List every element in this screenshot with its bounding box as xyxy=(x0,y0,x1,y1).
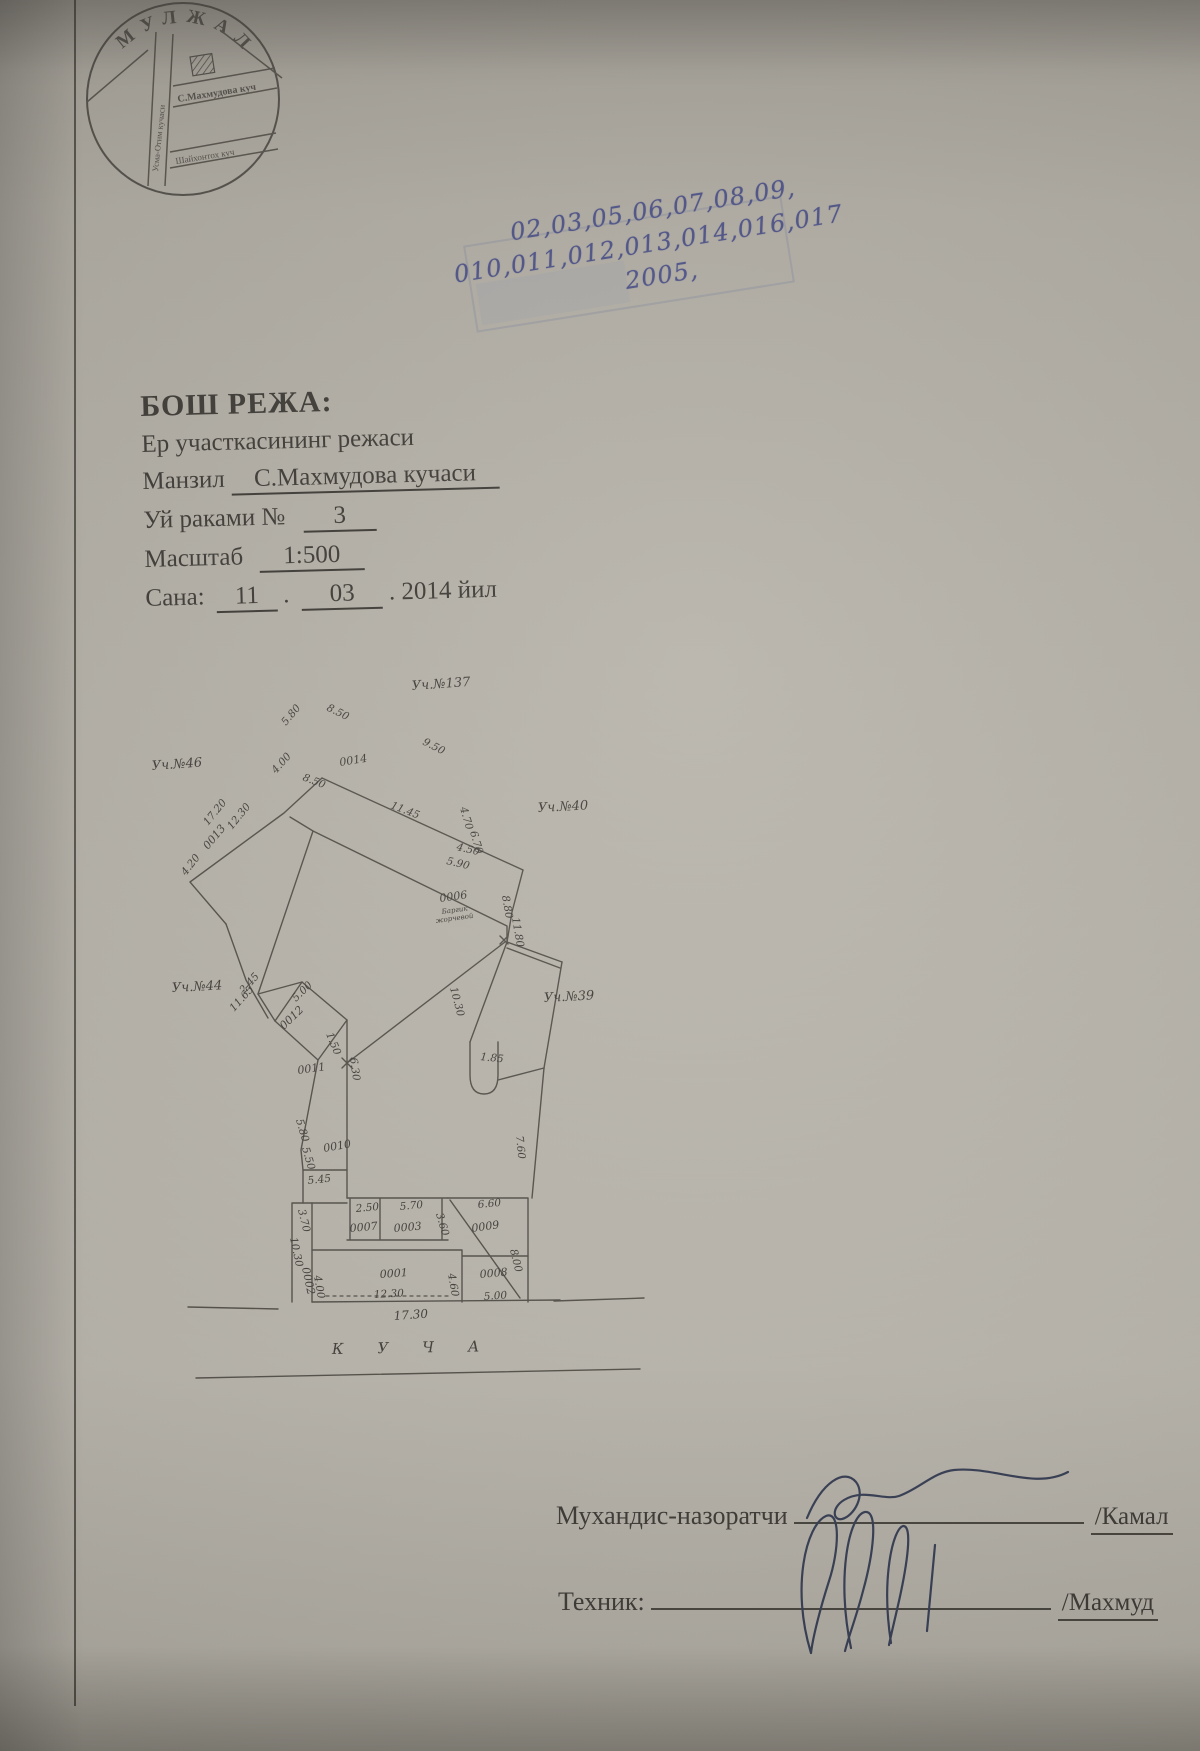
date-suffix: . 2014 йил xyxy=(389,576,498,606)
page-title: БОШ РЕЖА: xyxy=(140,376,681,424)
plan-label: Уч.№39 xyxy=(543,988,594,1006)
plan-label: 0012 xyxy=(277,1003,306,1032)
plan-label: 12.30 xyxy=(374,1287,405,1301)
plan-label: 5.80 xyxy=(293,1118,311,1144)
house-value: 3 xyxy=(303,501,376,533)
address-value: С.Махмудова кучаси xyxy=(231,459,500,496)
plan-label: Уч.№40 xyxy=(537,798,588,816)
plan-lines xyxy=(188,778,644,1378)
address-label: Манзил xyxy=(142,466,225,495)
seal-arc-title: МУЛЖАЛ xyxy=(112,6,260,60)
plan-label: 9.50 xyxy=(421,736,448,757)
house-label: Уй раками № xyxy=(143,503,286,534)
date-dot: . xyxy=(283,581,290,608)
plan-label: 4.00 xyxy=(311,1273,327,1299)
plan-label: 0011 xyxy=(297,1060,327,1077)
plan-label: 11.45 xyxy=(389,800,422,822)
date-row: Сана: 11 . 03 . 2014 йил xyxy=(145,571,686,615)
plan-label: 5.00 xyxy=(290,979,315,1004)
plan-label: 10.30 xyxy=(287,1236,305,1268)
plan-label: 12.30 xyxy=(225,801,253,832)
plan-label: 5.00 xyxy=(483,1289,507,1303)
plan-label: 5.80 xyxy=(279,702,303,728)
date-month: 03 xyxy=(301,579,383,611)
seal-plot-marker xyxy=(190,54,215,76)
plan-label: 0008 xyxy=(479,1266,508,1281)
engineer-label: Мухандис-назоратчи xyxy=(556,1501,788,1531)
plan-label: 0014 xyxy=(338,752,368,769)
plan-label: 5.70 xyxy=(399,1199,424,1213)
scale-value: 1:500 xyxy=(259,540,365,573)
street-caption: КУЧА xyxy=(331,1337,514,1358)
plan-label: 6.60 xyxy=(477,1197,502,1211)
plan-label: 5.45 xyxy=(307,1173,332,1187)
date-day: 11 xyxy=(217,581,278,613)
plan-label: 1.85 xyxy=(480,1051,505,1065)
house-row: Уй раками № 3 xyxy=(143,493,684,537)
subtitle: Ер участкасининг режаси xyxy=(141,417,682,459)
plan-label: 4.60 xyxy=(445,1271,461,1297)
plan-label: 7.60 xyxy=(513,1135,527,1160)
plan-label: Уч.№46 xyxy=(151,756,202,774)
plan-label: 0001 xyxy=(379,1266,408,1281)
date-label: Сана: xyxy=(145,583,205,612)
plan-label: Уч.№44 xyxy=(171,978,222,996)
plan-label: 3.70 xyxy=(295,1208,312,1234)
plan-label: 8.00 xyxy=(507,1248,524,1274)
plan-label: 4.70 xyxy=(457,805,475,832)
plan-label: 8.50 xyxy=(325,702,352,723)
plan-label: 5.90 xyxy=(445,855,471,872)
scale-row: Масштаб 1:500 xyxy=(144,532,685,576)
scanned-document-photo: { "colors": { "paper": "#b7b3aa", "ink":… xyxy=(0,0,1200,1751)
seal-street-horizontal-name: С.Махмудова куч xyxy=(177,82,257,105)
plan-label: 0003 xyxy=(393,1220,422,1235)
scan-border-line xyxy=(74,0,76,1706)
cadastral-plan-drawing: Уч.№137Уч.№46Уч.№40Уч.№44Уч.№3900148.505… xyxy=(150,650,690,1390)
technician-signature xyxy=(781,1503,981,1663)
plan-label: 10.30 xyxy=(447,986,466,1018)
engineer-name: /Камал xyxy=(1091,1503,1173,1535)
plan-label: 0007 xyxy=(349,1220,378,1235)
plan-label: 2.50 xyxy=(354,1201,380,1215)
plan-label: 0013 xyxy=(200,822,228,852)
plan-label: 1.50 xyxy=(323,1031,343,1057)
plan-label: 8.80 xyxy=(499,894,515,919)
plan-label: 0006 xyxy=(439,888,469,905)
technician-signature-line xyxy=(651,1578,1051,1610)
address-row: Манзил С.Махмудова кучаси xyxy=(142,454,683,498)
plan-label: 17.30 xyxy=(393,1307,429,1323)
plan-label: 6.30 xyxy=(347,1057,362,1082)
plan-label: Уч.№137 xyxy=(411,675,471,694)
scale-label: Масштаб xyxy=(144,543,243,573)
technician-signature-row: Техник: /Махмуд xyxy=(558,1578,1158,1621)
technician-label: Техник: xyxy=(558,1587,645,1617)
plan-label: 8.50 xyxy=(301,772,327,792)
document-header: БОШ РЕЖА: Ер участкасининг режаси Манзил… xyxy=(140,376,686,624)
plan-label: 4.00 xyxy=(269,750,294,776)
plan-label: 0009 xyxy=(471,1218,501,1235)
technician-name: /Махмуд xyxy=(1058,1589,1158,1621)
location-seal: МУЛЖАЛ Усма-Отим кучаси С.Махмудова куч … xyxy=(70,0,305,205)
plan-label: 3.60 xyxy=(433,1212,451,1238)
seal-street-vertical-name: Усма-Отим кучаси xyxy=(150,104,167,172)
